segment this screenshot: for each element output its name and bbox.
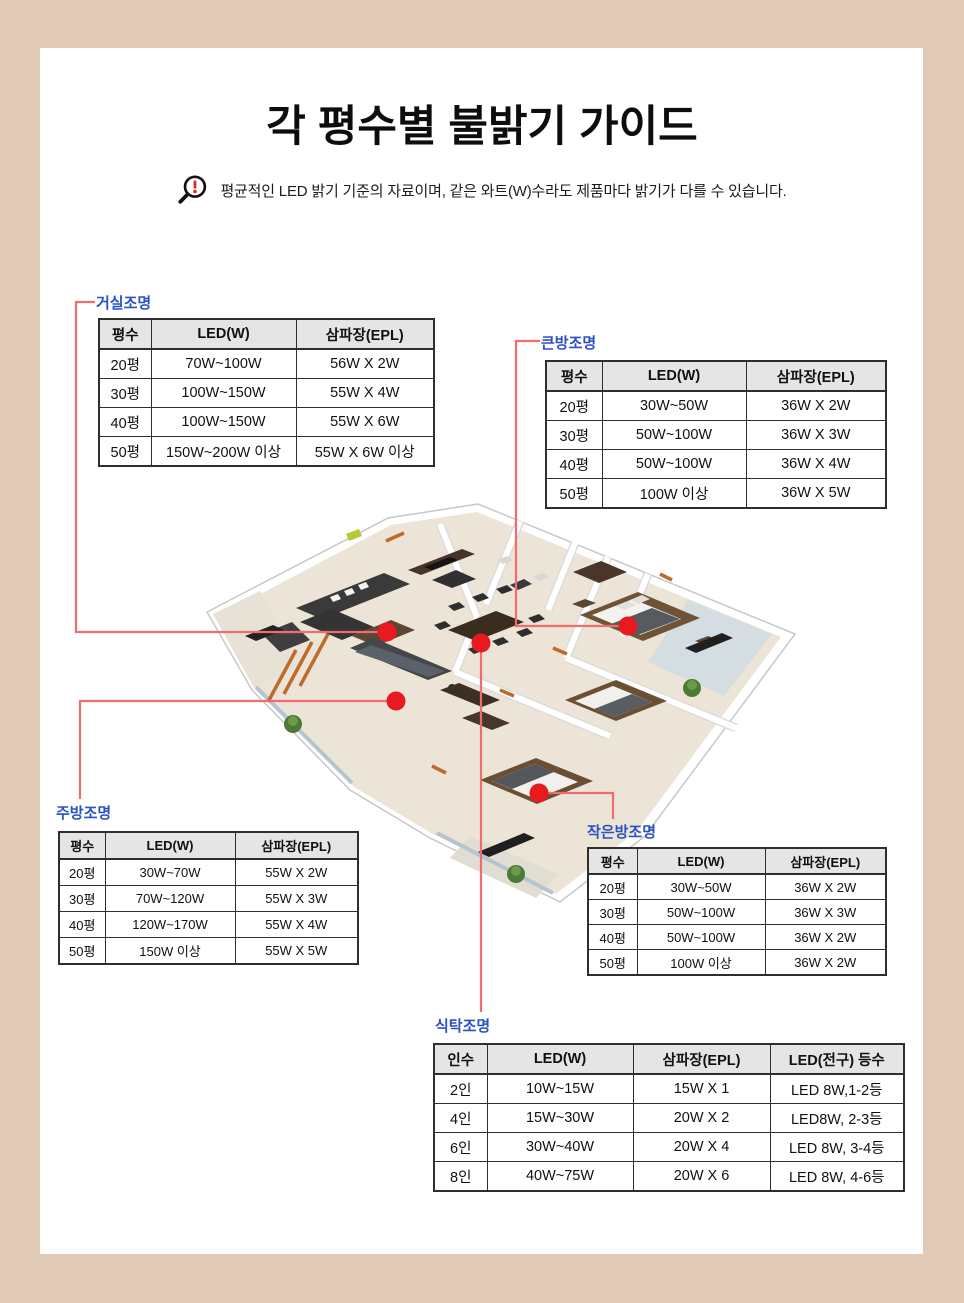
- table-cell: 100W~150W: [151, 379, 296, 408]
- table-cell: 36W X 3W: [746, 421, 886, 450]
- table-row: 50평150W 이상55W X 5W: [59, 938, 358, 965]
- table-row: 30평100W~150W55W X 4W: [99, 379, 434, 408]
- column-header: LED(전구) 등수: [770, 1044, 904, 1074]
- table-cell: 30평: [99, 379, 151, 408]
- table-row: 30평50W~100W36W X 3W: [588, 900, 886, 925]
- table-header-row: 평수LED(W)삼파장(EPL): [588, 848, 886, 874]
- master-room-light-dot: [619, 617, 638, 636]
- column-header: 삼파장(EPL): [235, 832, 358, 859]
- small-room-light-dot: [530, 784, 549, 803]
- table-cell: 36W X 3W: [765, 900, 886, 925]
- table-cell: 20W X 4: [633, 1133, 770, 1162]
- table-row: 4인15W~30W20W X 2LED8W, 2-3등: [434, 1104, 904, 1133]
- dining-lighting-table: 인수LED(W)삼파장(EPL)LED(전구) 등수 2인10W~15W15W …: [433, 1043, 905, 1192]
- table-cell: 15W~30W: [487, 1104, 633, 1133]
- living-lighting-table: 평수LED(W)삼파장(EPL) 20평70W~100W56W X 2W30평1…: [98, 318, 435, 467]
- column-header: LED(W): [151, 319, 296, 349]
- table-header-row: 평수LED(W)삼파장(EPL): [59, 832, 358, 859]
- table-cell: LED 8W, 3-4등: [770, 1133, 904, 1162]
- table-row: 40평100W~150W55W X 6W: [99, 408, 434, 437]
- master-section-label: 큰방조명: [541, 332, 596, 353]
- table-cell: 36W X 2W: [746, 391, 886, 421]
- column-header: LED(W): [487, 1044, 633, 1074]
- table-row: 2인10W~15W15W X 1LED 8W,1-2등: [434, 1074, 904, 1104]
- column-header: 평수: [59, 832, 105, 859]
- table-cell: 4인: [434, 1104, 487, 1133]
- page-title: 각 평수별 불밝기 가이드: [0, 92, 964, 154]
- table-cell: 100W 이상: [637, 950, 765, 976]
- table-row: 50평100W 이상36W X 5W: [546, 479, 886, 509]
- dining-table-light-dot: [472, 634, 491, 653]
- table-cell: 40평: [59, 912, 105, 938]
- table-row: 40평50W~100W36W X 4W: [546, 450, 886, 479]
- magnifier-warning-icon: [177, 173, 211, 207]
- table-cell: 55W X 4W: [296, 379, 434, 408]
- small-room-lighting-table: 평수LED(W)삼파장(EPL) 20평30W~50W36W X 2W30평50…: [587, 847, 887, 976]
- table-cell: 2인: [434, 1074, 487, 1104]
- table-cell: 120W~170W: [105, 912, 235, 938]
- notice-row: 평균적인 LED 밝기 기준의 자료이며, 같은 와트(W)수라도 제품마다 밝…: [0, 173, 964, 207]
- table-cell: 36W X 4W: [746, 450, 886, 479]
- column-header: 평수: [588, 848, 637, 874]
- table-cell: 30평: [59, 886, 105, 912]
- kitchen-light-dot: [387, 692, 406, 711]
- table-cell: 50평: [99, 437, 151, 467]
- table-row: 6인30W~40W20W X 4LED 8W, 3-4등: [434, 1133, 904, 1162]
- table-cell: 6인: [434, 1133, 487, 1162]
- table-cell: 20평: [99, 349, 151, 379]
- table-cell: 30W~70W: [105, 859, 235, 886]
- page-background: 각 평수별 불밝기 가이드 평균적인 LED 밝기 기준의 자료이며, 같은 와…: [0, 0, 964, 1303]
- table-cell: 40평: [99, 408, 151, 437]
- table-cell: 40평: [546, 450, 602, 479]
- table-cell: LED 8W,1-2등: [770, 1074, 904, 1104]
- table-cell: 40평: [588, 925, 637, 950]
- table-cell: 36W X 2W: [765, 950, 886, 976]
- table-cell: 20W X 2: [633, 1104, 770, 1133]
- table-row: 8인40W~75W20W X 6LED 8W, 4-6등: [434, 1162, 904, 1192]
- column-header: 인수: [434, 1044, 487, 1074]
- table-cell: 20평: [546, 391, 602, 421]
- table-cell: 50평: [588, 950, 637, 976]
- table-cell: 150W~200W 이상: [151, 437, 296, 467]
- living-room-light-dot: [378, 623, 397, 642]
- table-cell: 30평: [546, 421, 602, 450]
- column-header: 삼파장(EPL): [633, 1044, 770, 1074]
- small-section-label: 작은방조명: [587, 821, 656, 842]
- table-row: 50평100W 이상36W X 2W: [588, 950, 886, 976]
- table-cell: 55W X 2W: [235, 859, 358, 886]
- table-row: 40평50W~100W36W X 2W: [588, 925, 886, 950]
- table-cell: 30W~40W: [487, 1133, 633, 1162]
- table-cell: 36W X 2W: [765, 925, 886, 950]
- kitchen-lighting-table: 평수LED(W)삼파장(EPL) 20평30W~70W55W X 2W30평70…: [58, 831, 359, 965]
- kitchen-section-label: 주방조명: [56, 802, 111, 823]
- table-cell: 100W~150W: [151, 408, 296, 437]
- table-row: 20평30W~50W36W X 2W: [588, 874, 886, 900]
- table-cell: 50W~100W: [602, 450, 746, 479]
- dining-section-label: 식탁조명: [435, 1015, 490, 1036]
- master-lighting-table: 평수LED(W)삼파장(EPL) 20평30W~50W36W X 2W30평50…: [545, 360, 887, 509]
- table-cell: 55W X 6W 이상: [296, 437, 434, 467]
- table-cell: LED 8W, 4-6등: [770, 1162, 904, 1192]
- column-header: 삼파장(EPL): [746, 361, 886, 391]
- table-cell: 15W X 1: [633, 1074, 770, 1104]
- table-cell: 55W X 4W: [235, 912, 358, 938]
- column-header: 삼파장(EPL): [765, 848, 886, 874]
- table-cell: 55W X 3W: [235, 886, 358, 912]
- table-cell: 56W X 2W: [296, 349, 434, 379]
- table-row: 20평30W~70W55W X 2W: [59, 859, 358, 886]
- table-row: 30평70W~120W55W X 3W: [59, 886, 358, 912]
- table-cell: LED8W, 2-3등: [770, 1104, 904, 1133]
- table-cell: 70W~100W: [151, 349, 296, 379]
- table-cell: 50평: [546, 479, 602, 509]
- table-cell: 30W~50W: [602, 391, 746, 421]
- column-header: 삼파장(EPL): [296, 319, 434, 349]
- table-cell: 70W~120W: [105, 886, 235, 912]
- table-header-row: 평수LED(W)삼파장(EPL): [99, 319, 434, 349]
- table-row: 40평120W~170W55W X 4W: [59, 912, 358, 938]
- table-row: 30평50W~100W36W X 3W: [546, 421, 886, 450]
- table-cell: 40W~75W: [487, 1162, 633, 1192]
- table-cell: 8인: [434, 1162, 487, 1192]
- table-cell: 30W~50W: [637, 874, 765, 900]
- notice-text: 평균적인 LED 밝기 기준의 자료이며, 같은 와트(W)수라도 제품마다 밝…: [220, 180, 786, 201]
- table-header-row: 인수LED(W)삼파장(EPL)LED(전구) 등수: [434, 1044, 904, 1074]
- column-header: 평수: [546, 361, 602, 391]
- table-cell: 55W X 5W: [235, 938, 358, 965]
- column-header: LED(W): [602, 361, 746, 391]
- table-row: 20평70W~100W56W X 2W: [99, 349, 434, 379]
- table-cell: 10W~15W: [487, 1074, 633, 1104]
- table-cell: 20W X 6: [633, 1162, 770, 1192]
- table-cell: 50W~100W: [602, 421, 746, 450]
- table-cell: 55W X 6W: [296, 408, 434, 437]
- table-header-row: 평수LED(W)삼파장(EPL): [546, 361, 886, 391]
- table-cell: 50W~100W: [637, 900, 765, 925]
- table-cell: 50W~100W: [637, 925, 765, 950]
- living-section-label: 거실조명: [96, 292, 151, 313]
- table-cell: 150W 이상: [105, 938, 235, 965]
- table-cell: 20평: [588, 874, 637, 900]
- table-cell: 100W 이상: [602, 479, 746, 509]
- table-cell: 36W X 5W: [746, 479, 886, 509]
- column-header: 평수: [99, 319, 151, 349]
- column-header: LED(W): [105, 832, 235, 859]
- table-row: 50평150W~200W 이상55W X 6W 이상: [99, 437, 434, 467]
- table-cell: 20평: [59, 859, 105, 886]
- column-header: LED(W): [637, 848, 765, 874]
- table-row: 20평30W~50W36W X 2W: [546, 391, 886, 421]
- table-cell: 50평: [59, 938, 105, 965]
- table-cell: 30평: [588, 900, 637, 925]
- table-cell: 36W X 2W: [765, 874, 886, 900]
